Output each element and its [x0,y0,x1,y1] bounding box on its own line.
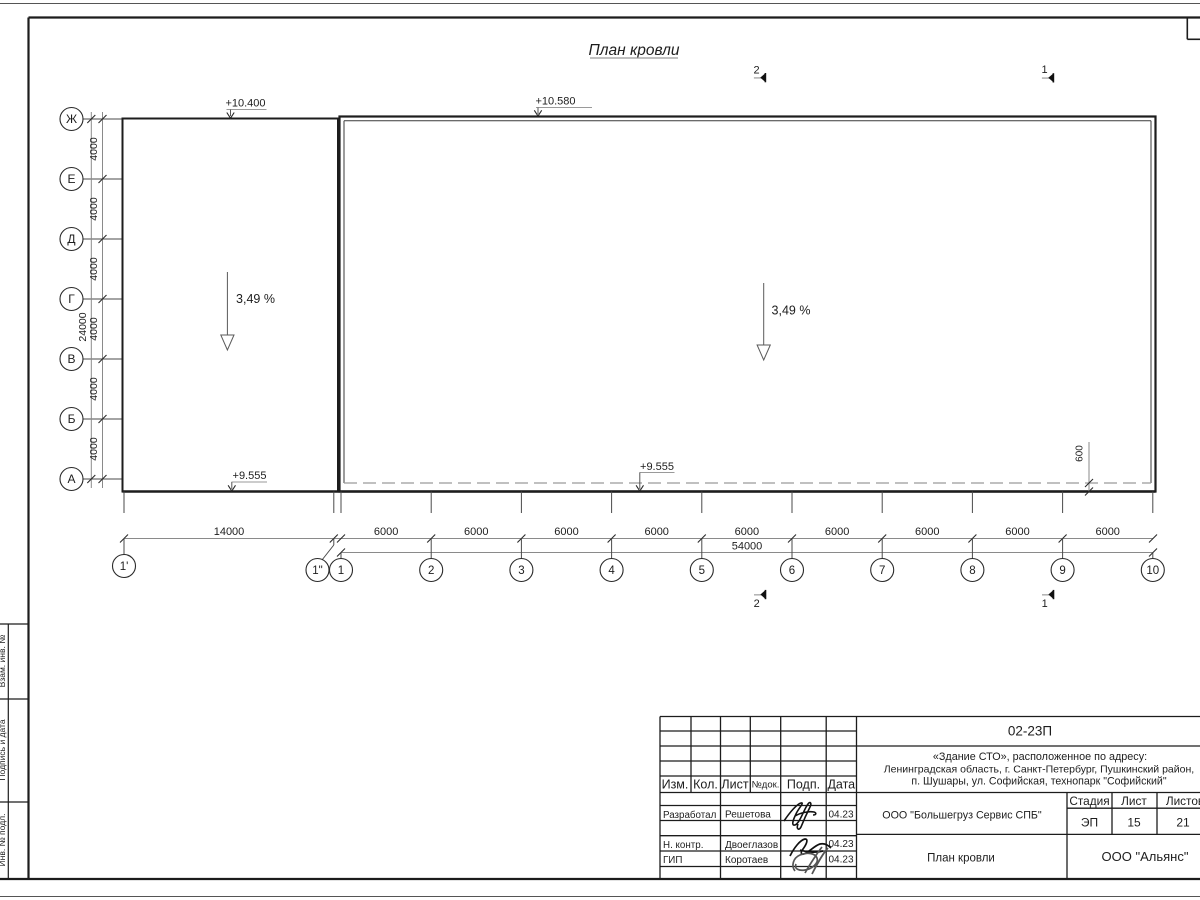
svg-text:54000: 54000 [732,541,763,553]
svg-text:Н. контр.: Н. контр. [663,840,703,851]
svg-text:ООО "Большегруз Сервис СПБ": ООО "Большегруз Сервис СПБ" [882,809,1042,821]
svg-text:6: 6 [789,565,795,577]
svg-text:6000: 6000 [374,526,398,538]
svg-text:04.23: 04.23 [828,809,853,820]
svg-text:2: 2 [754,598,760,610]
svg-text:Б: Б [68,412,76,426]
svg-text:+9.555: +9.555 [233,470,267,482]
svg-text:4000: 4000 [88,317,100,341]
svg-text:Ленинградская область, г. Санк: Ленинградская область, г. Санкт-Петербур… [884,764,1194,776]
svg-text:ООО "Альянс": ООО "Альянс" [1102,849,1189,864]
svg-text:4: 4 [608,565,615,577]
svg-text:1: 1 [1041,64,1047,76]
svg-text:6000: 6000 [825,526,849,538]
svg-text:Инв. № подл.: Инв. № подл. [0,814,7,867]
svg-text:+9.555: +9.555 [640,461,674,473]
svg-text:ГИП: ГИП [663,855,682,866]
svg-text:«Здание СТО», расположенное по: «Здание СТО», расположенное по адресу: [933,751,1147,763]
svg-text:Д: Д [67,232,75,246]
svg-text:Двоеглазов: Двоеглазов [725,840,778,851]
svg-text:6000: 6000 [554,526,578,538]
svg-text:ЭП: ЭП [1081,816,1098,830]
svg-text:04.23: 04.23 [828,839,853,850]
svg-text:4000: 4000 [88,437,100,461]
svg-text:02-23П: 02-23П [1008,724,1052,739]
svg-text:6000: 6000 [915,526,939,538]
svg-text:Лист: Лист [721,778,748,792]
svg-text:№док.: №док. [752,780,780,791]
svg-text:4000: 4000 [88,197,100,221]
svg-text:Лист: Лист [1121,794,1147,808]
svg-text:2: 2 [428,565,434,577]
svg-text:4000: 4000 [88,377,100,401]
svg-text:9: 9 [1059,565,1065,577]
svg-text:4000: 4000 [88,257,100,281]
svg-text:6000: 6000 [1095,526,1119,538]
svg-text:Разработал: Разработал [663,810,717,821]
svg-text:1": 1" [312,565,322,577]
svg-text:3,49 %: 3,49 % [772,304,811,318]
svg-text:Кол.: Кол. [693,778,718,792]
svg-text:Ж: Ж [66,112,77,126]
svg-text:6000: 6000 [644,526,668,538]
svg-text:7: 7 [879,565,885,577]
svg-text:Взам. инв. №: Взам. инв. № [0,635,7,688]
svg-text:План кровли: План кровли [927,853,995,865]
svg-text:Г: Г [68,292,75,306]
svg-text:10: 10 [1146,565,1159,577]
svg-text:5: 5 [699,565,705,577]
svg-text:1: 1 [1042,598,1048,610]
svg-text:А: А [67,472,75,486]
svg-text:+10.580: +10.580 [535,96,575,108]
svg-text:Подп.: Подп. [787,778,820,792]
svg-text:6000: 6000 [735,526,759,538]
svg-text:3,49 %: 3,49 % [236,292,275,306]
svg-text:В: В [67,352,75,366]
svg-text:4000: 4000 [88,137,100,161]
svg-text:Изм.: Изм. [662,778,689,792]
svg-text:Подпись и дата: Подпись и дата [0,719,7,780]
svg-text:04.23: 04.23 [828,854,853,865]
svg-text:Решетова: Решетова [725,810,771,821]
svg-text:+10.400: +10.400 [225,98,265,110]
svg-text:Листов: Листов [1166,794,1200,808]
svg-text:План кровли: План кровли [589,42,680,59]
svg-text:14000: 14000 [214,526,245,538]
svg-text:15: 15 [1127,816,1141,830]
svg-text:3: 3 [518,565,524,577]
svg-text:Коротаев: Коротаев [725,855,768,866]
svg-text:6000: 6000 [464,526,488,538]
svg-text:21: 21 [1176,816,1190,830]
svg-text:6000: 6000 [1005,526,1029,538]
svg-text:600: 600 [1075,445,1086,462]
svg-text:п. Шушары, ул. Софийская, техн: п. Шушары, ул. Софийская, технопарк "Соф… [911,776,1166,788]
svg-text:Дата: Дата [827,778,855,792]
svg-text:2: 2 [753,65,759,77]
svg-text:Е: Е [67,172,75,186]
svg-text:24000: 24000 [77,312,89,341]
svg-text:1: 1 [338,565,344,577]
svg-text:Стадия: Стадия [1069,794,1109,808]
svg-text:8: 8 [969,565,975,577]
svg-text:1': 1' [120,561,129,573]
